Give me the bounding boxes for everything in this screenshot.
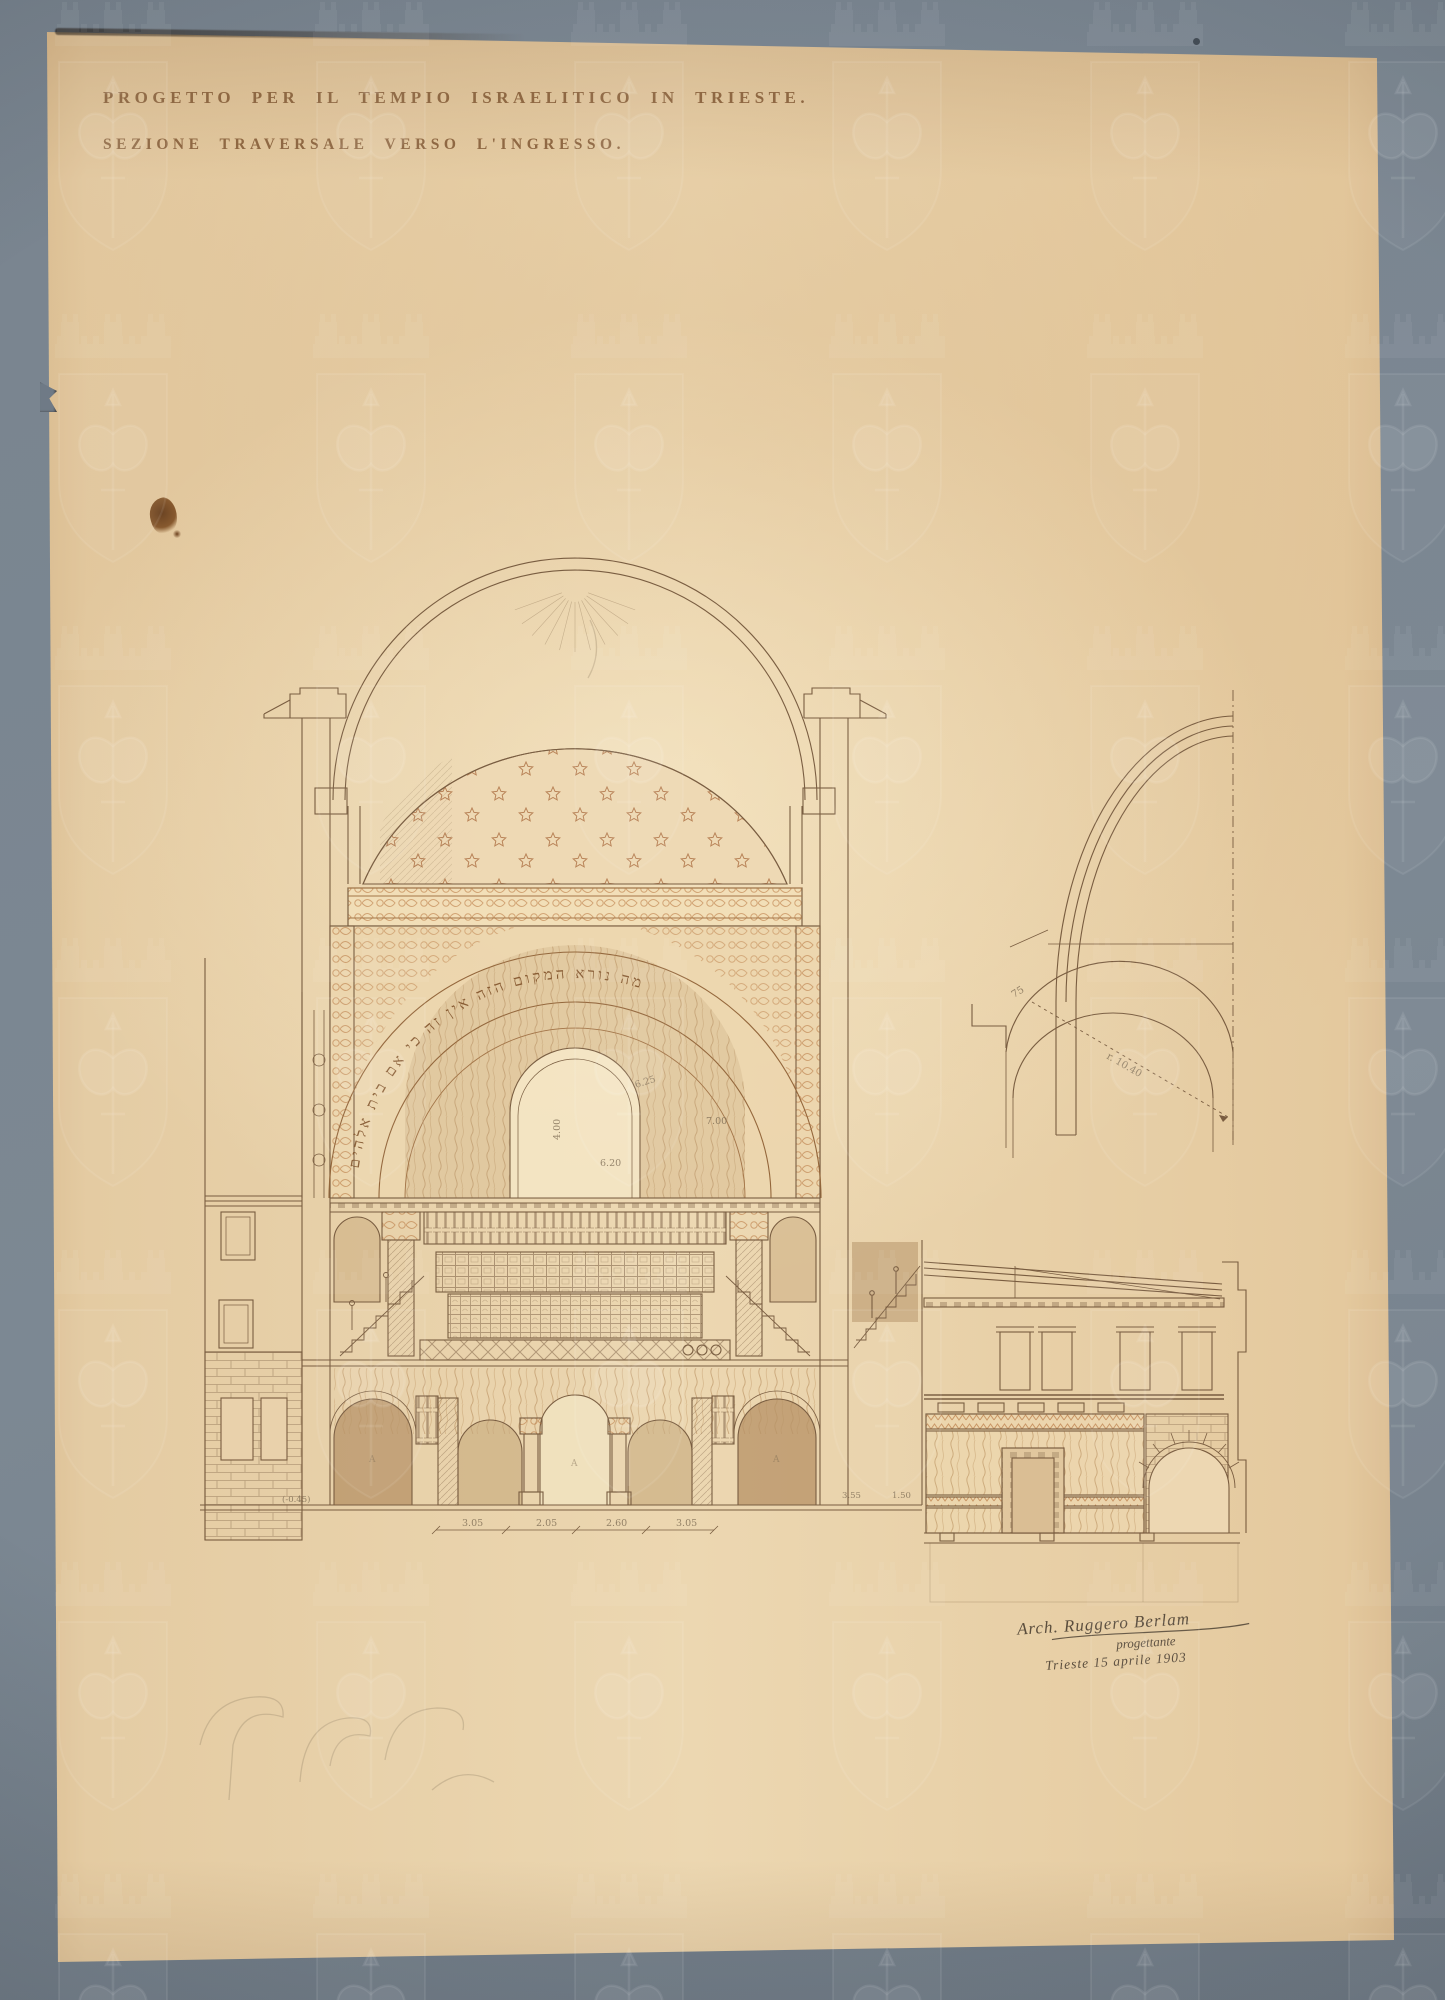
svg-text:1.50: 1.50: [892, 1491, 911, 1501]
gallery-seating: [436, 1252, 714, 1338]
scanned-drawing-page: PROGETTO PER IL TEMPIO ISRAELITICO IN TR…: [0, 0, 1445, 2000]
main-section: [200, 558, 922, 1510]
ground-line: [200, 1505, 922, 1510]
svg-text:A: A: [368, 1455, 376, 1465]
stair-bay: [852, 1240, 922, 1505]
svg-text:2.05: 2.05: [536, 1518, 557, 1529]
gallery-floor: [302, 1360, 848, 1366]
svg-text:6.20: 6.20: [600, 1158, 621, 1169]
svg-text:r. 10.40: r. 10.40: [1105, 1051, 1144, 1080]
svg-text:3.05: 3.05: [462, 1518, 483, 1529]
annex-corbels: [938, 1403, 1124, 1412]
annex-windows: [996, 1327, 1216, 1390]
svg-text:2.60: 2.60: [606, 1518, 627, 1529]
dome-frieze: [348, 888, 802, 926]
tympanum-stars: [363, 593, 787, 884]
arched-window: [510, 1048, 640, 1198]
svg-text:A: A: [570, 1459, 578, 1469]
annex-door: [1002, 1448, 1064, 1533]
svg-text:4.00: 4.00: [552, 1119, 563, 1140]
entrance-arcade: [330, 1368, 820, 1505]
arch-detail: [972, 690, 1233, 1158]
parapet: [420, 1340, 730, 1360]
architectural-drawing: מה נורא המקום הזה אין זה כי אם בית אלהים…: [0, 0, 1445, 2000]
organ-gallery: [334, 1212, 816, 1360]
svg-text:(-0.45): (-0.45): [282, 1494, 310, 1505]
annex-decorated-wall: [926, 1414, 1144, 1533]
svg-text:7.00: 7.00: [706, 1116, 727, 1127]
left-wall-elevation: [205, 958, 325, 1540]
svg-text:A: A: [772, 1455, 780, 1465]
svg-text:3.55: 3.55: [842, 1491, 861, 1501]
annex-elevation: [924, 1262, 1246, 1602]
svg-text:75: 75: [1010, 984, 1027, 1000]
annex-portal: [1139, 1414, 1239, 1533]
svg-text:3.05: 3.05: [676, 1518, 697, 1529]
